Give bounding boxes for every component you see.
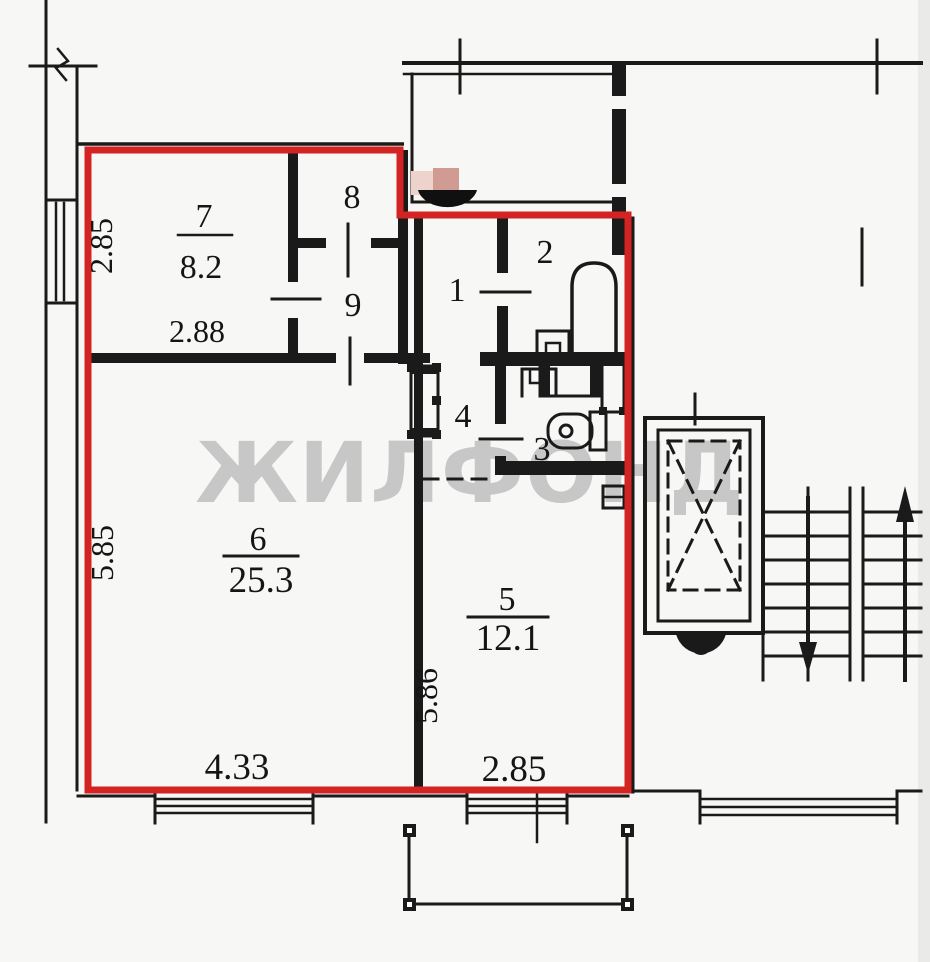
room7-width-dim: 2.88	[169, 313, 225, 349]
room6-width-dim: 4.33	[205, 747, 270, 788]
agency-watermark: ЖИЛФОНД	[195, 424, 745, 522]
room7-area: 8.2	[180, 249, 223, 286]
room5-width-dim: 2.85	[482, 749, 547, 790]
room7-number: 7	[196, 198, 213, 235]
room6-height-dim: 5.85	[84, 525, 120, 581]
floor-plan-scan: ЖИЛФОНД	[0, 0, 930, 962]
room4-number: 4	[455, 398, 472, 435]
room3-number: 3	[534, 431, 551, 468]
room6-number: 6	[250, 521, 267, 558]
scan-edge-right	[918, 0, 930, 962]
room1-number: 1	[449, 272, 466, 309]
floor-plan-drawing: ЖИЛФОНД	[0, 0, 930, 962]
room5-area: 12.1	[476, 618, 541, 659]
room8-number: 8	[344, 179, 361, 216]
room5-number: 5	[499, 581, 516, 618]
room6-area: 25.3	[229, 560, 294, 601]
room5-height-dim: 5.86	[408, 668, 444, 724]
room7-height-dim: 2.85	[83, 218, 119, 274]
room9-number: 9	[345, 287, 362, 324]
room2-number: 2	[537, 234, 554, 271]
